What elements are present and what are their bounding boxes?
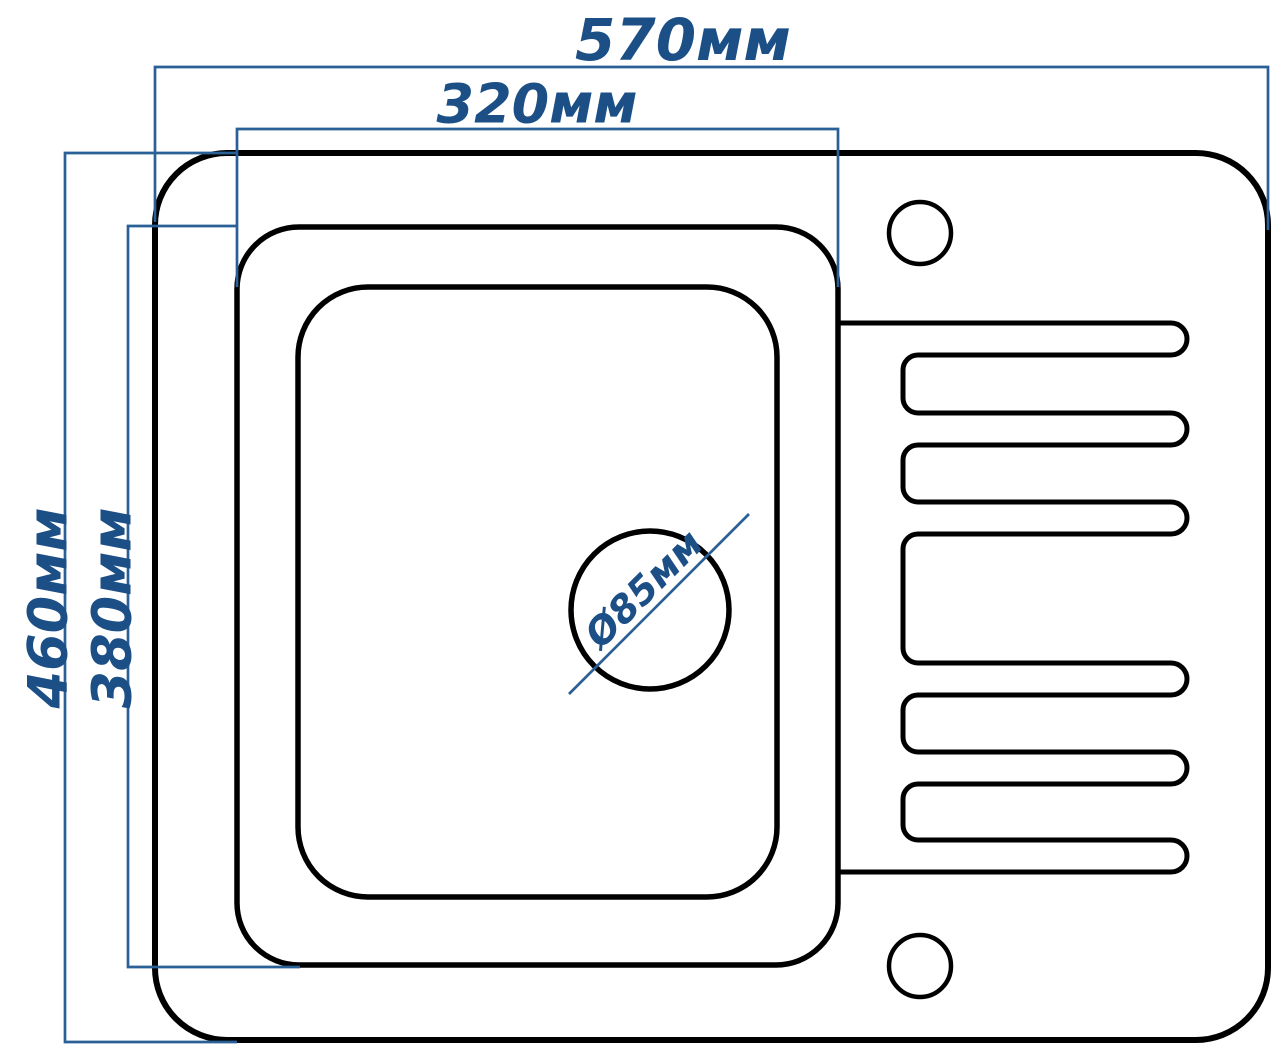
dim-label-overall-width: 570мм xyxy=(575,6,791,74)
faucet-hole-bottom xyxy=(889,935,951,997)
dim-label-bowl-depth: 380мм xyxy=(81,508,144,709)
dim-label-overall-depth: 460мм xyxy=(17,508,80,710)
dim-line-overall-width xyxy=(155,67,1268,230)
dim-label-bowl-width: 320мм xyxy=(437,73,638,136)
drainboard-grooves xyxy=(838,323,1187,872)
faucet-hole-top xyxy=(889,202,951,264)
dim-label-drain-diameter: Ø85мм xyxy=(575,521,712,658)
bowl-inner-wall xyxy=(298,287,777,897)
bowl-outer-rim xyxy=(237,227,838,965)
sink-technical-drawing: 570мм 320мм 460мм 380мм Ø85мм xyxy=(0,0,1280,1061)
drawing-svg: 570мм 320мм 460мм 380мм Ø85мм xyxy=(0,0,1280,1061)
